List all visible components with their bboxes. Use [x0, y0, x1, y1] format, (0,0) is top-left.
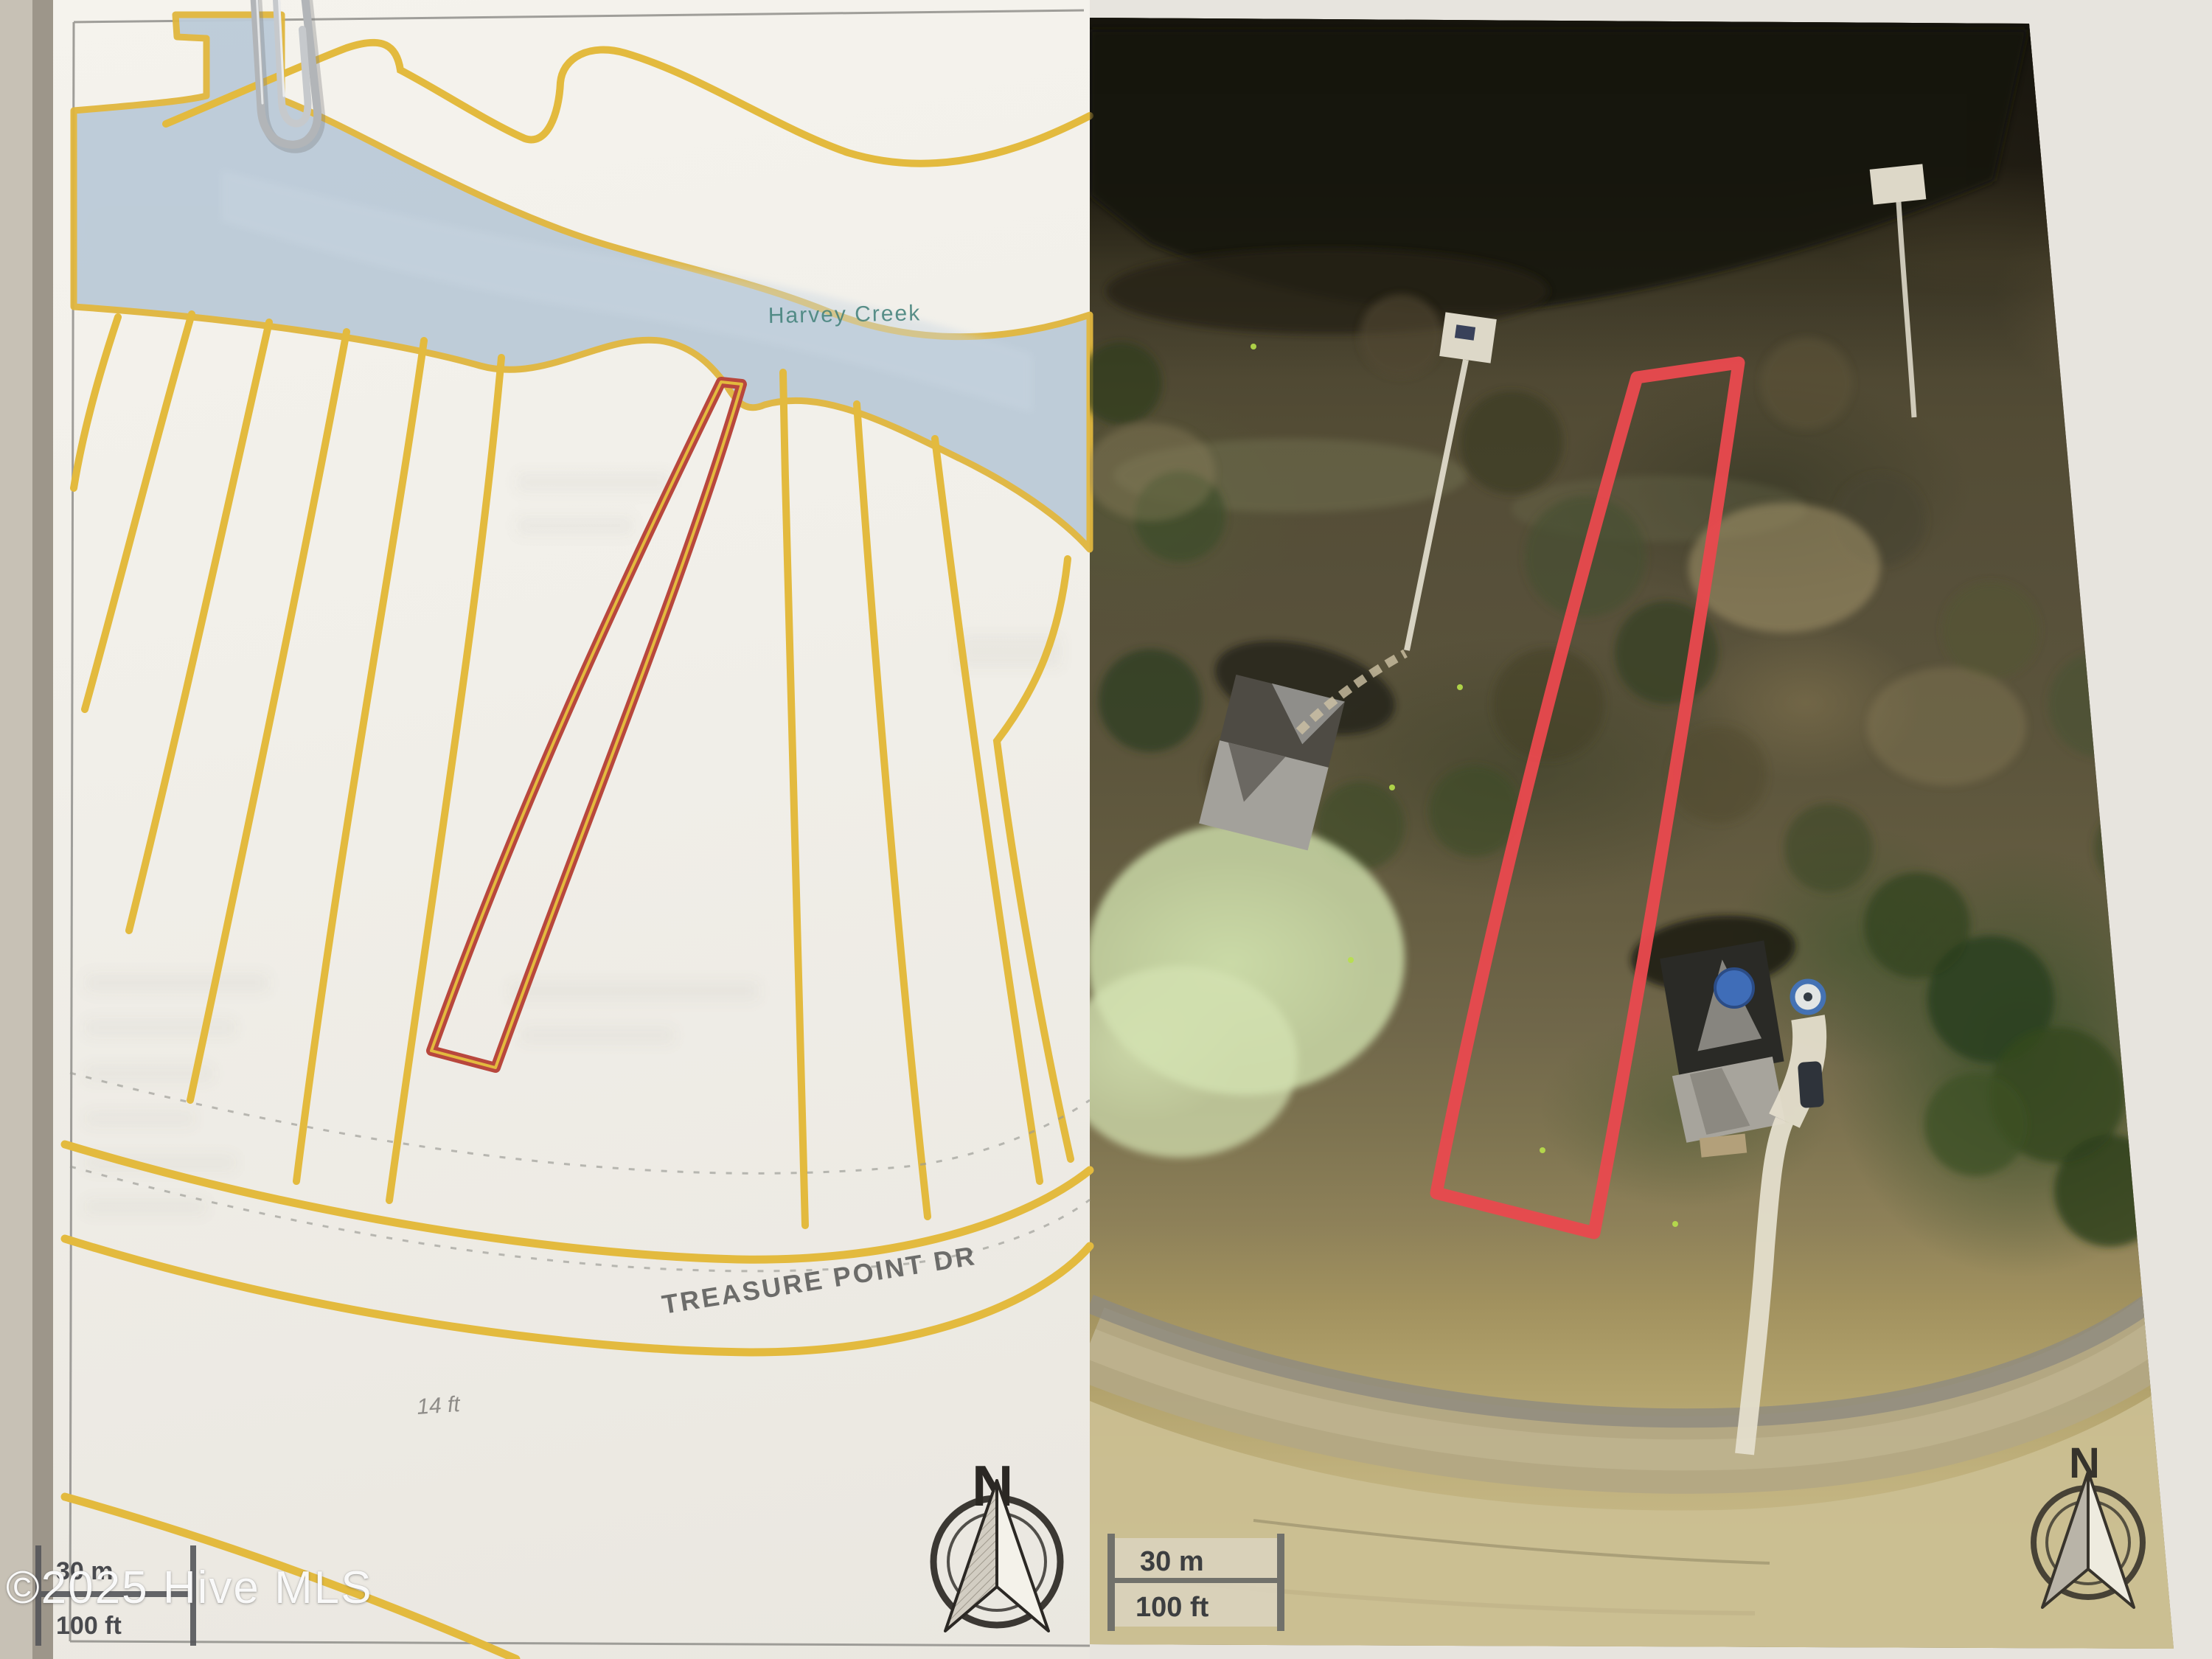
driveway-lane — [1745, 1121, 1784, 1454]
street-label: TREASURE POINT DR — [660, 1240, 978, 1320]
aerial-scale-imperial: 100 ft — [1135, 1592, 1209, 1623]
plat-scale-imperial: 100 ft — [56, 1612, 122, 1640]
creek-label: Harvey Creek — [768, 301, 922, 328]
compass-north-icon: N — [933, 1453, 1060, 1631]
parked-car — [1798, 1061, 1824, 1108]
pool-blue-circle — [1715, 969, 1753, 1007]
aerial-photo: 30 m 100 ft N — [1062, 29, 2183, 1652]
lot-fan-lines — [74, 314, 1071, 1225]
map-vector-overlay: Harvey Creek — [0, 0, 2212, 1659]
aerial-scale-metric: 30 m — [1140, 1546, 1204, 1577]
neighbor-lawn — [1062, 822, 1405, 1158]
dock-pier-right — [2129, 221, 2144, 401]
scanned-map-sheet: Harvey Creek — [0, 0, 2212, 1659]
mls-watermark: ©2025 Hive MLS — [6, 1562, 373, 1614]
round-pool — [1792, 981, 1823, 1012]
plat-map: Harvey Creek — [38, 10, 1090, 1659]
dimension-label: 14 ft — [416, 1392, 462, 1419]
aerial-scale-bar: 30 m 100 ft — [1107, 1534, 1284, 1631]
aerial-road — [1090, 1281, 2177, 1455]
